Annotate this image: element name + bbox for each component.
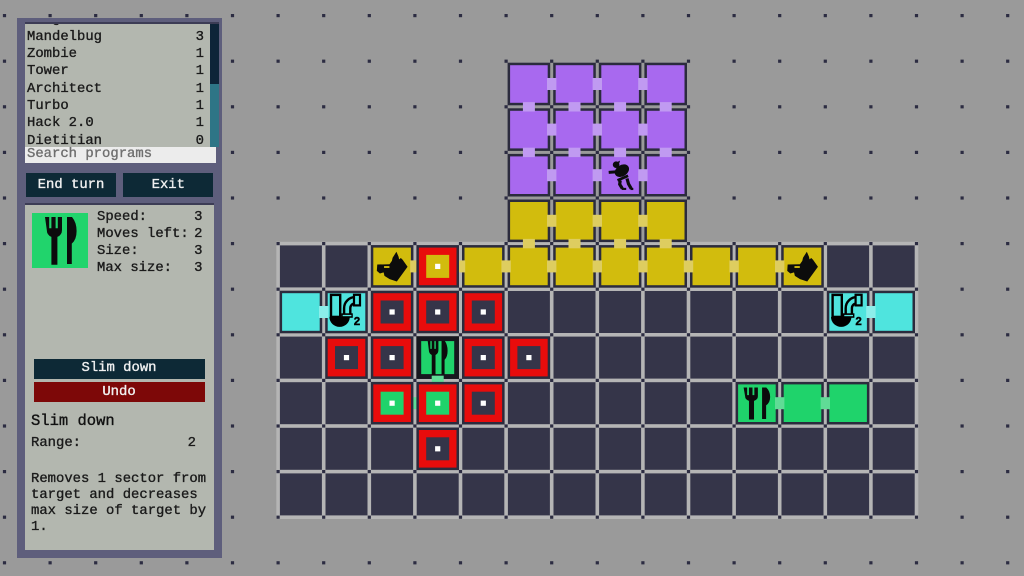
svg-text:2: 2: [855, 316, 862, 329]
svg-text:2: 2: [354, 316, 361, 329]
